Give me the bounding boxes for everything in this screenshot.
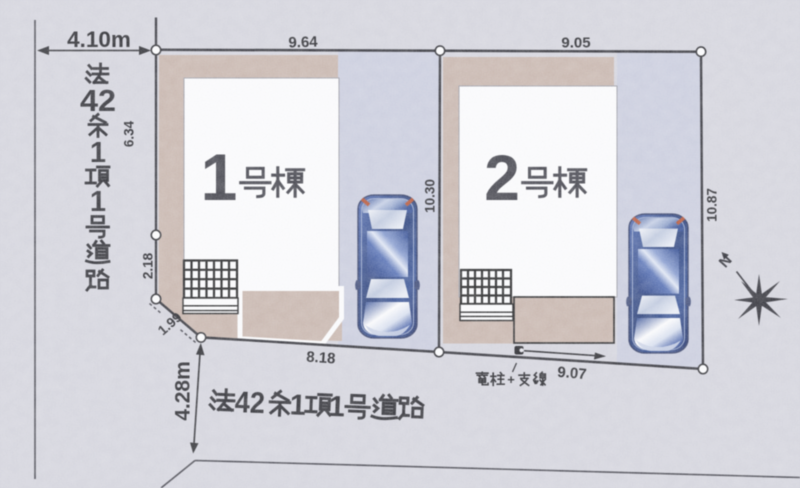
svg-text:1: 1 — [90, 137, 106, 169]
svg-text:4.28m: 4.28m — [172, 361, 195, 421]
svg-text:1: 1 — [90, 186, 106, 218]
svg-text:6.34: 6.34 — [122, 120, 137, 147]
svg-text:9.05: 9.05 — [561, 35, 590, 52]
svg-text:2: 2 — [484, 142, 520, 214]
svg-text:10.30: 10.30 — [423, 179, 438, 213]
svg-text:1: 1 — [289, 389, 306, 422]
svg-text:+: + — [507, 372, 515, 387]
svg-text:1: 1 — [328, 391, 345, 424]
svg-text:42: 42 — [234, 386, 265, 420]
svg-text:8.18: 8.18 — [306, 348, 336, 367]
svg-text:9.64: 9.64 — [288, 33, 318, 51]
svg-text:10.87: 10.87 — [705, 188, 720, 222]
svg-text:2.18: 2.18 — [141, 252, 156, 279]
svg-text:4.10m: 4.10m — [67, 27, 131, 52]
svg-text:9.07: 9.07 — [557, 364, 588, 383]
svg-text:1: 1 — [201, 140, 238, 214]
